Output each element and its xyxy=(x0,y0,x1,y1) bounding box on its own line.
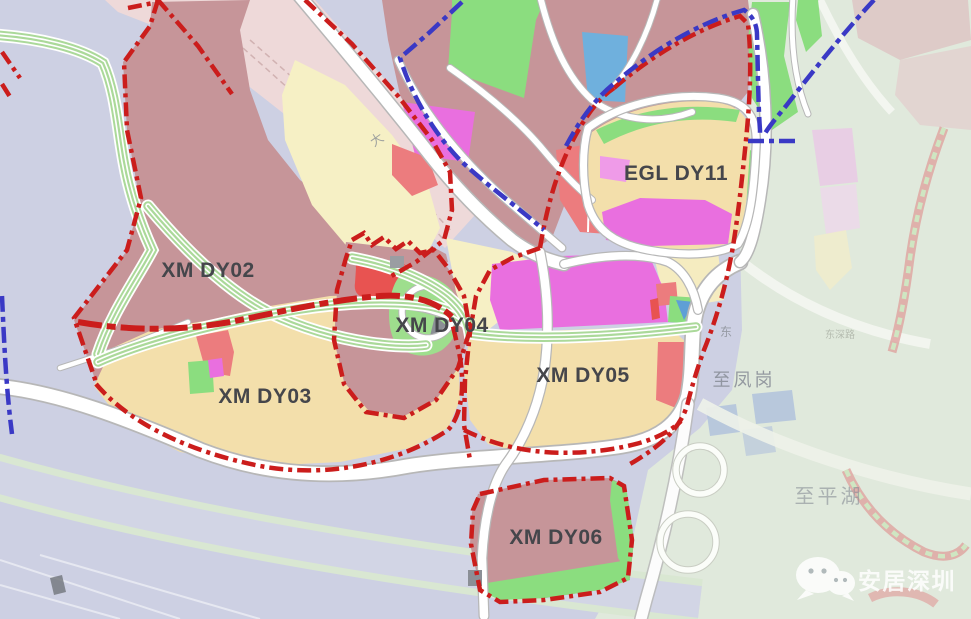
faded-parcel xyxy=(812,128,858,186)
planning-map-svg: XM DY02 XM DY03 XM DY04 XM DY05 XM DY06 … xyxy=(0,0,971,619)
wechat-eye xyxy=(821,568,826,573)
wechat-bubble-small xyxy=(827,571,855,595)
parcel-magenta xyxy=(208,358,224,378)
place-label-to-fenggang: 至凤岗 xyxy=(713,370,776,390)
district-label-egl-dy11: EGL DY11 xyxy=(624,162,728,185)
district-label-xm-dy06: XM DY06 xyxy=(509,526,602,549)
wechat-eye xyxy=(808,568,813,573)
watermark-text: 安居深圳 xyxy=(858,568,956,594)
district-label-xm-dy04: XM DY04 xyxy=(395,314,488,337)
wechat-eye xyxy=(834,578,838,582)
wechat-eye xyxy=(843,578,847,582)
faded-parcel xyxy=(820,184,860,234)
map-image: XM DY02 XM DY03 XM DY04 XM DY05 XM DY06 … xyxy=(0,0,971,619)
gray-structure xyxy=(390,256,404,268)
district-label-xm-dy02: XM DY02 xyxy=(161,259,254,282)
road-label-dong: 东 xyxy=(720,325,732,339)
district-label-xm-dy03: XM DY03 xyxy=(218,385,311,408)
road-label-dongshen-road: 东深路 xyxy=(825,328,855,341)
district-label-xm-dy05: XM DY05 xyxy=(536,364,629,387)
place-label-to-pinghu: 至平湖 xyxy=(795,485,864,508)
faded-blue-parcel xyxy=(752,390,796,424)
